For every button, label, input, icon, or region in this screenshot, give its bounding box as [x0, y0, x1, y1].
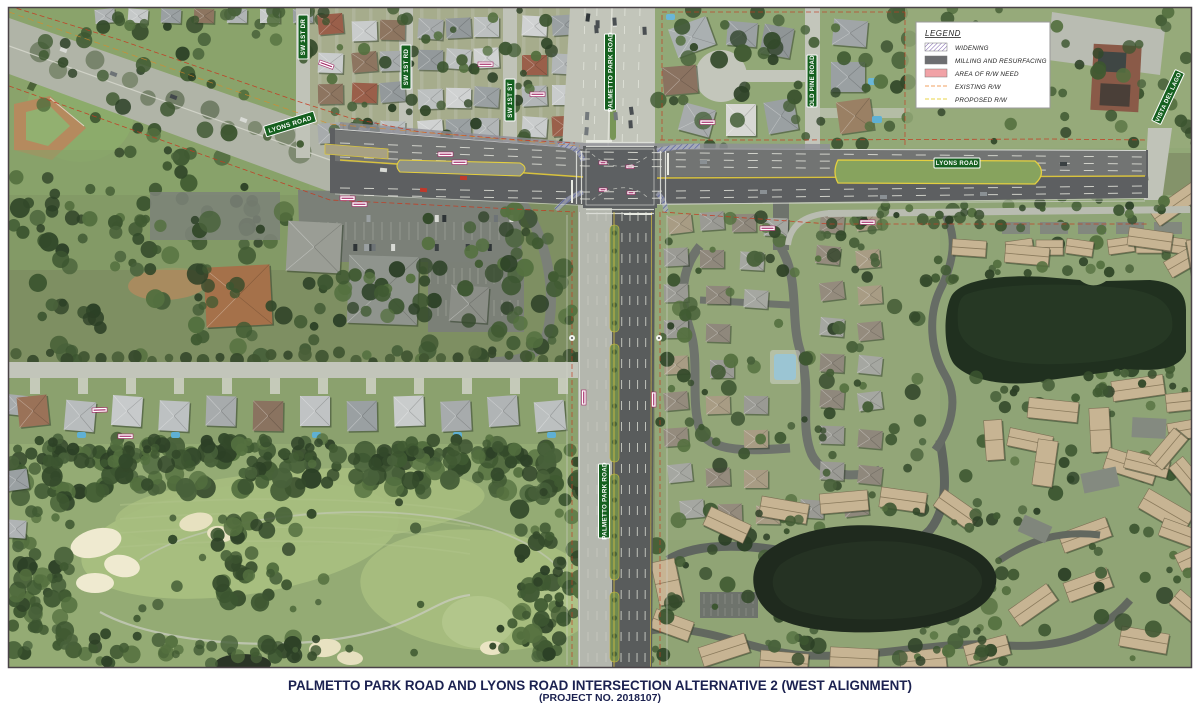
svg-text:PALMETTO PARK ROAD: PALMETTO PARK ROAD — [607, 32, 614, 112]
svg-text:LYONS ROAD: LYONS ROAD — [936, 161, 979, 167]
svg-text:LEGEND: LEGEND — [925, 29, 961, 38]
svg-text:OLD PINE ROAD: OLD PINE ROAD — [810, 55, 816, 107]
svg-text:MILLING AND RESURFACING: MILLING AND RESURFACING — [955, 58, 1047, 65]
svg-text:WIDENING: WIDENING — [955, 45, 989, 52]
svg-text:AREA OF R/W NEED: AREA OF R/W NEED — [954, 71, 1019, 78]
svg-text:SW 1ST RD: SW 1ST RD — [403, 49, 410, 86]
svg-text:PALMETTO PARK ROAD: PALMETTO PARK ROAD — [601, 462, 608, 540]
svg-text:(PROJECT NO. 2018107): (PROJECT NO. 2018107) — [539, 692, 661, 704]
svg-text:PALMETTO PARK ROAD AND LYONS R: PALMETTO PARK ROAD AND LYONS ROAD INTERS… — [288, 678, 912, 693]
svg-text:PROPOSED R/W: PROPOSED R/W — [955, 97, 1008, 104]
svg-text:EXISTING R/W: EXISTING R/W — [955, 84, 1002, 91]
svg-text:SW 1ST DR: SW 1ST DR — [300, 19, 307, 56]
svg-text:SW 1ST ST: SW 1ST ST — [507, 82, 514, 117]
